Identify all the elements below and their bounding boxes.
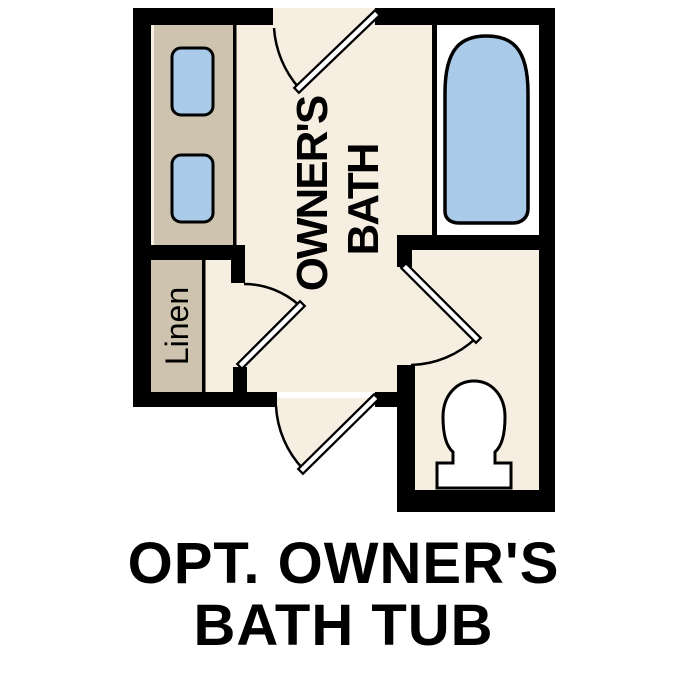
wall-right [539, 8, 555, 512]
sink-basin-icon [172, 48, 213, 115]
caption-line-1: OPT. OWNER'S [0, 533, 687, 595]
tub-alcove [432, 25, 539, 235]
wall-linen-door-jamb-top [231, 245, 245, 283]
wall-wc-left [397, 365, 415, 512]
sink-basin-icon [172, 155, 213, 222]
wall-bottom-left [133, 392, 277, 407]
tub-alcove-edge [432, 25, 437, 235]
room-label-line-1: OWNER'S [288, 96, 337, 291]
floor-plan-page: Linen [0, 0, 687, 687]
linen-closet: Linen [151, 260, 206, 392]
toilet-top-view-icon [437, 381, 511, 488]
vanity-front-edge [233, 25, 237, 245]
caption-line-2: BATH TUB [0, 595, 687, 657]
linen-closet-front-edge [202, 260, 206, 392]
floor-plan-drawing: Linen [0, 0, 687, 530]
wall-vanity-linen-divider [133, 245, 235, 260]
wall-top-right [375, 8, 555, 25]
vanity-counter [154, 25, 237, 245]
wall-linen-door-jamb-bottom [233, 367, 247, 392]
wall-left [133, 8, 151, 407]
bathtub-top-view-icon [445, 36, 528, 223]
wall-top-left [133, 8, 273, 25]
linen-label: Linen [159, 287, 195, 365]
wall-wc-top [397, 235, 555, 250]
wall-wc-bottom [397, 490, 555, 512]
plan-caption: OPT. OWNER'S BATH TUB [0, 533, 687, 657]
room-label-line-2: BATH [339, 145, 388, 256]
